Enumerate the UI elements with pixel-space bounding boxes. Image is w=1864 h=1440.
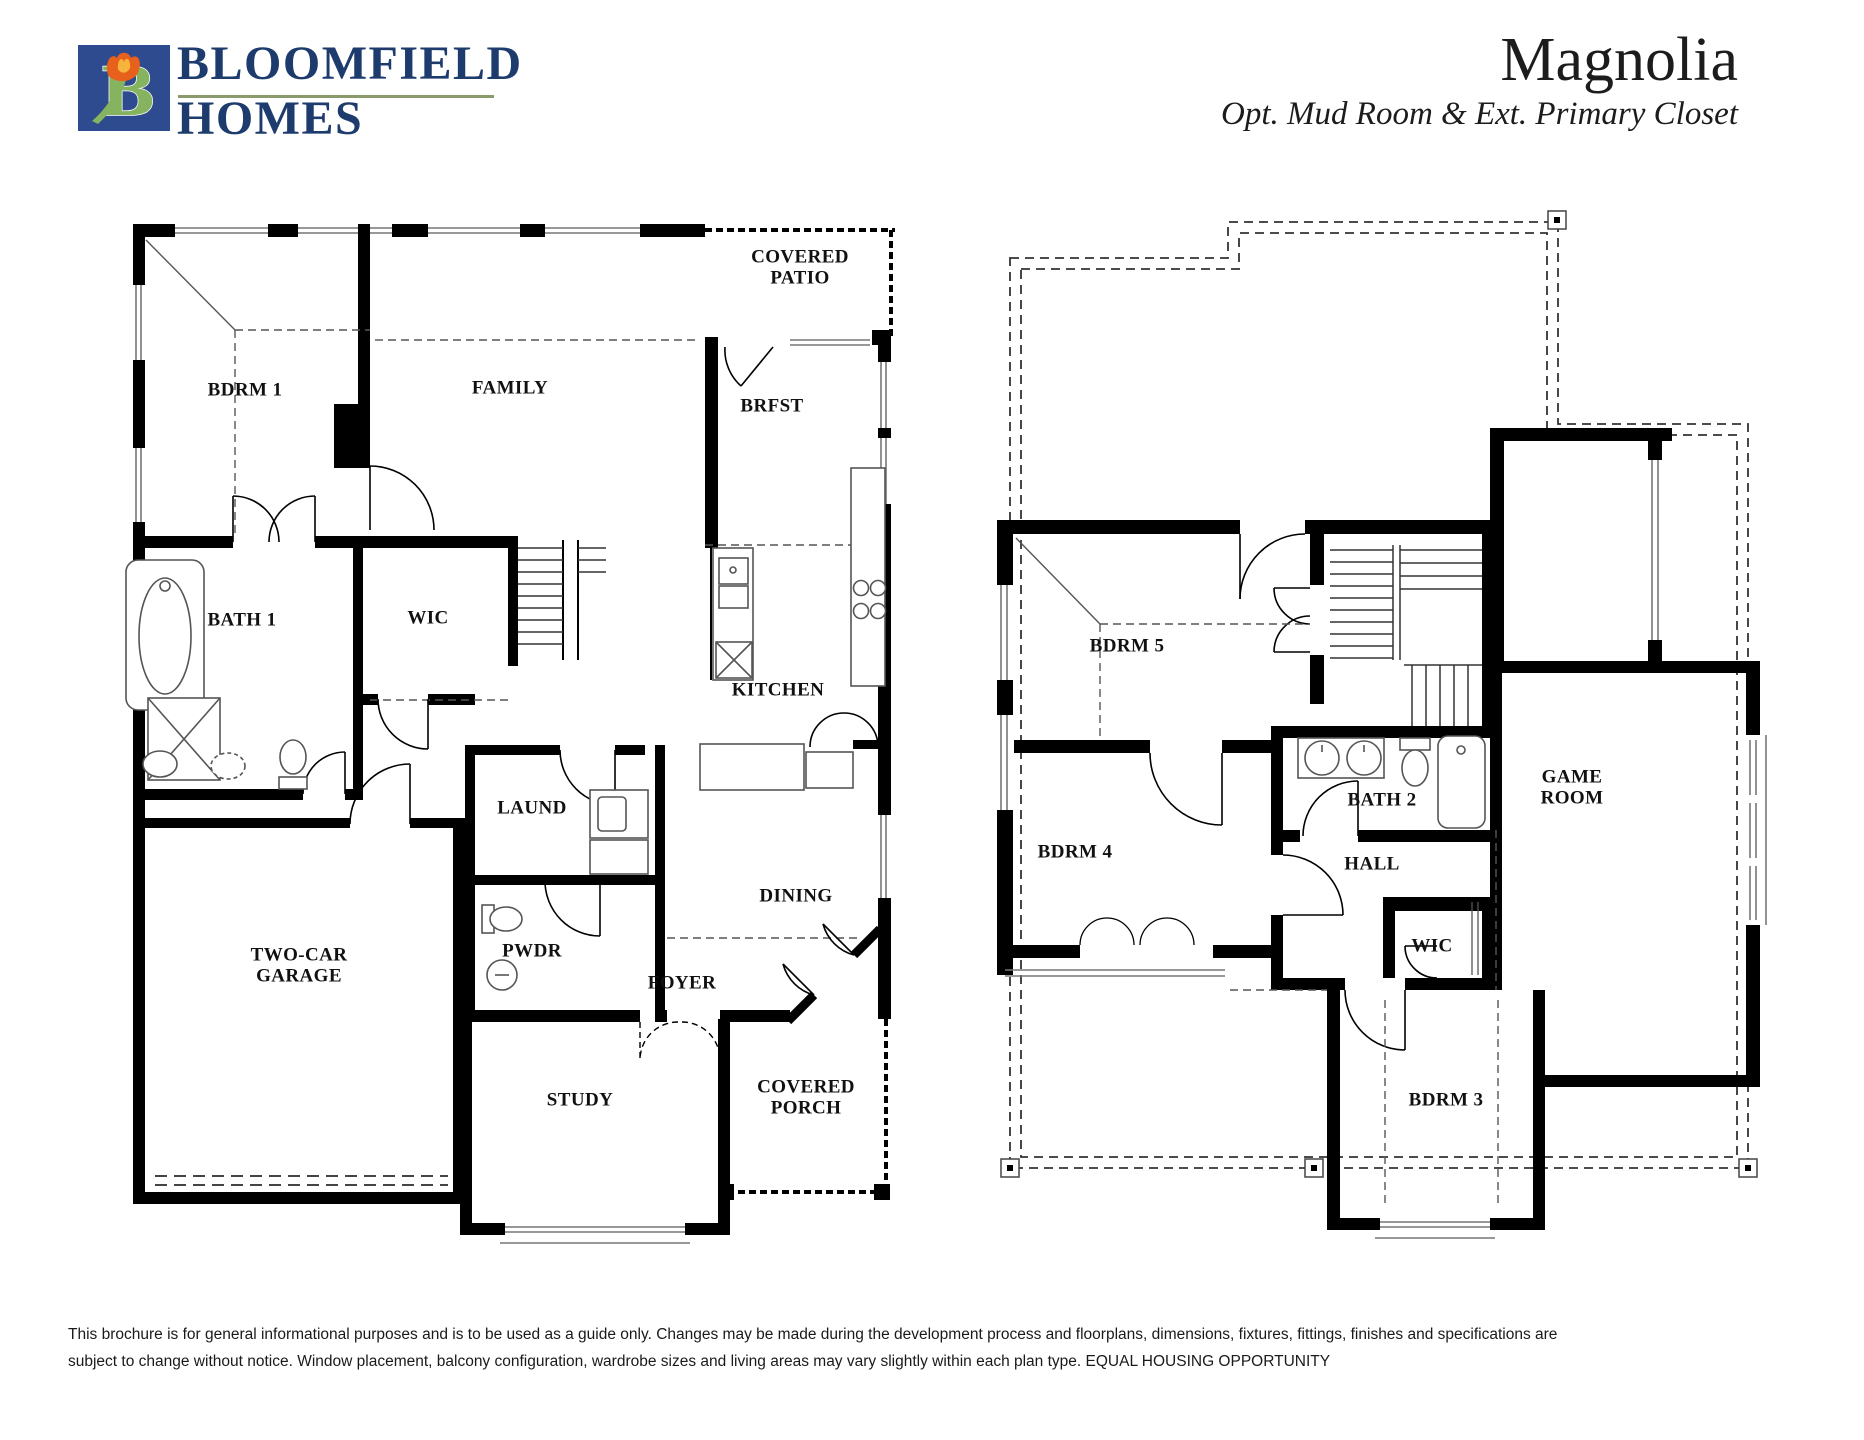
room-label-bath-2: BATH 2 [1347,789,1416,810]
first-floor-dashed-lines [235,330,878,938]
disclaimer: This brochure is for general information… [68,1322,1557,1375]
room-label-kitchen: KITCHEN [732,679,825,700]
roof-outline-dashed [1010,222,1748,1168]
toilet-icon [279,777,307,789]
disclaimer-line1: This brochure is for general information… [68,1322,1557,1349]
laundry-fixtures [590,790,648,874]
bdrm5-corner-diagonal [1016,538,1100,624]
room-label-game-room: GAME ROOM [1541,767,1604,810]
wic-closet-rods [1472,902,1478,975]
room-label-covered-patio: COVERED PATIO [751,247,849,290]
toilet-icon [1400,738,1430,750]
open-boundaries [563,540,711,680]
room-label-wic-2: WIC [1411,935,1452,956]
room-label-bdrm-1: BDRM 1 [208,379,283,400]
bdrm1-corner-diagonal [146,240,235,330]
bath2-fixtures [1298,736,1485,828]
room-label-hall: HALL [1344,853,1399,874]
bath1-fixtures [126,560,307,789]
room-label-dining: DINING [759,885,832,906]
disclaimer-line2: subject to change without notice. Window… [68,1349,1557,1376]
sink-icon [143,751,177,777]
room-label-study: STUDY [547,1089,613,1110]
second-floor-plan [996,211,1766,1238]
room-label-pwdr: PWDR [502,940,562,961]
room-label-two-car-garage: TWO-CAR GARAGE [251,945,348,988]
room-label-bdrm-5: BDRM 5 [1090,635,1165,656]
second-floor-stairs [1330,545,1482,726]
room-label-bath-1: BATH 1 [207,609,276,630]
room-label-covered-porch: COVERED PORCH [757,1077,855,1120]
room-label-wic-1: WIC [407,607,448,628]
study-french-doors [640,1022,720,1060]
room-label-laund: LAUND [497,797,567,818]
room-label-bdrm-4: BDRM 4 [1038,841,1113,862]
room-label-foyer: FOYER [648,972,717,993]
room-label-brfst: BRFST [740,395,803,416]
floorplan-drawing [0,0,1864,1440]
roof-corner-markers [1001,211,1757,1177]
patio-porch-walls [705,230,895,1192]
room-label-family: FAMILY [472,377,548,398]
kitchen-island [700,744,804,790]
garage-door-dashes [155,1176,448,1185]
dryer-icon [590,840,648,874]
second-floor-walls [997,428,1760,1230]
room-label-bdrm-3: BDRM 3 [1409,1089,1484,1110]
brochure-page: B BLOOMFIELD HOMES Magnolia Opt. Mud Roo… [0,0,1864,1440]
cooktop-icon [854,581,869,596]
